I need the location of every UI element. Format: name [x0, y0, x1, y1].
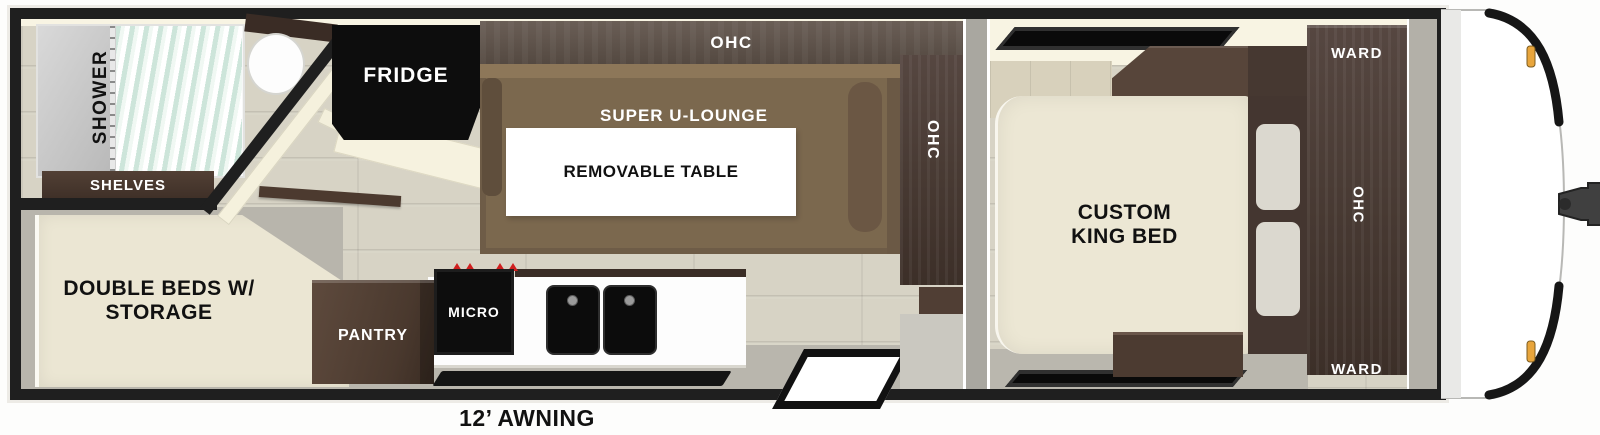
shelves-label: SHELVES [90, 177, 166, 194]
double-beds-label-line1: DOUBLE BEDS W/ [63, 277, 254, 301]
double-beds-label-line2: STORAGE [63, 301, 254, 325]
bed-overhead-cabinet-2 [1248, 46, 1307, 98]
wardrobe-bottom-label-box: WARD [1307, 359, 1407, 379]
lounge-armrest [482, 78, 502, 196]
bedroom-ohc-label: OHC [1350, 186, 1367, 224]
marker-light [1527, 46, 1535, 67]
sink-basin-left [546, 285, 600, 355]
sink-basin-right [603, 285, 657, 355]
removable-table: REMOVABLE TABLE [506, 128, 796, 216]
front-cap-shade [1441, 10, 1461, 398]
shelves: SHELVES [42, 171, 214, 200]
nightstand-shelf [1256, 222, 1300, 316]
micro-label: MICRO [448, 304, 500, 320]
nightstand-shelf [1256, 124, 1300, 210]
awning-rail [432, 371, 731, 386]
wardrobe-top-label: WARD [1331, 45, 1383, 62]
nightstand [1248, 96, 1308, 354]
kitchen-sink [546, 285, 656, 355]
wardrobe-top-label-box: WARD [1307, 43, 1407, 63]
lounge-ohc-label: OHC [923, 120, 941, 160]
u-lounge-label: SUPER U-LOUNGE [600, 106, 768, 126]
wardrobe-bottom-label: WARD [1331, 361, 1383, 378]
pantry-label: PANTRY [338, 327, 408, 345]
shower-label: SHOWER [90, 50, 112, 145]
microwave: MICRO [434, 269, 514, 355]
king-bed-label-line1: CUSTOM [1071, 201, 1178, 225]
floorplan-canvas: SHOWER SHELVES DOUBLE BEDS W/ STORAGE [0, 0, 1600, 435]
removable-table-label: REMOVABLE TABLE [564, 162, 739, 182]
lounge-ohc [900, 55, 963, 285]
pantry: PANTRY [312, 280, 434, 384]
king-bed-label-line2: KING BED [1071, 225, 1178, 249]
trailer-outline: SHOWER SHELVES DOUBLE BEDS W/ STORAGE [10, 8, 1446, 400]
awning-label: 12’ AWNING [459, 405, 595, 432]
lounge-cushion [848, 82, 882, 232]
faucet-knob-icon [624, 295, 635, 306]
fridge-label: FRIDGE [363, 64, 448, 88]
front-cap [1441, 6, 1600, 402]
shower [36, 24, 245, 178]
bedroom-wall [963, 19, 990, 389]
bed-bench [1113, 332, 1243, 377]
hitch-coupler [1559, 198, 1571, 210]
faucet-knob-icon [567, 295, 578, 306]
fridge: FRIDGE [332, 25, 480, 140]
shower-glass [115, 26, 242, 176]
awning-label-box: 12’ AWNING [367, 404, 687, 432]
front-interior-wall [1407, 19, 1437, 389]
bedroom-walkway [900, 314, 963, 389]
galley-ohc-label: OHC [710, 33, 752, 53]
king-bed: CUSTOM KING BED [995, 96, 1251, 354]
marker-light [1527, 341, 1535, 362]
bathroom-rear-wall [21, 198, 217, 210]
